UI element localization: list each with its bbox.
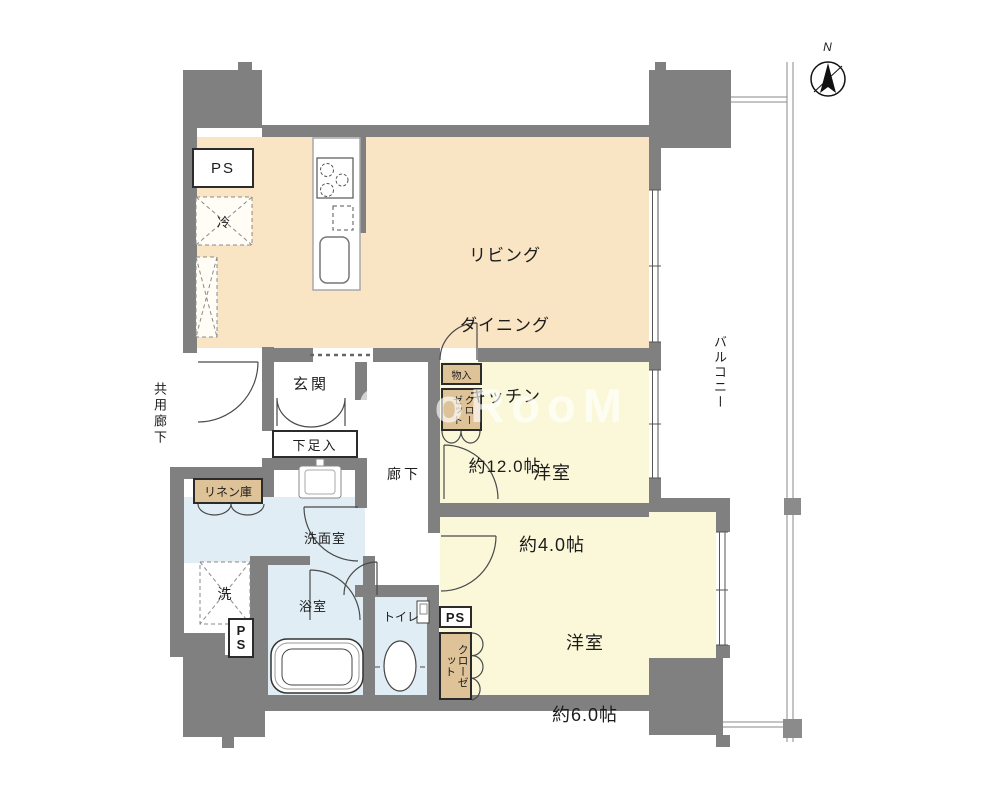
bathroom-label: 浴室 xyxy=(283,596,343,615)
pantry-box xyxy=(196,257,217,337)
bedroom4-label: 洋室 約4.0帖 xyxy=(472,412,632,606)
window-ldk xyxy=(649,190,661,342)
ps-bottom-label: PS xyxy=(446,610,465,625)
balcony-label: バルコニー xyxy=(710,332,729,412)
balcony-railing xyxy=(723,62,802,742)
washroom-label: 洗面室 xyxy=(287,528,363,547)
ps-left-box: P S xyxy=(228,618,254,658)
bedroom6-size: 約6.0帖 xyxy=(505,703,665,727)
bedroom4-size: 約4.0帖 xyxy=(472,533,632,557)
linen-label: リネン庫 xyxy=(204,483,252,500)
ldk-label-line3: キッチン xyxy=(415,385,595,408)
bedroom6-label: 洋室 約6.0帖 xyxy=(505,582,665,776)
front-door-arc xyxy=(198,362,258,422)
ps-bottom-box: PS xyxy=(439,606,472,628)
bedroom4-name: 洋室 xyxy=(472,461,632,485)
ps-left-p: P xyxy=(237,624,246,638)
washer-label: 洗 xyxy=(213,584,237,604)
north-arrow-icon xyxy=(811,62,845,96)
floorplan: PS 下足入 リネン庫 物入 クローゼット PS クローゼット P S 冷 洗 … xyxy=(0,0,999,801)
north-label: N xyxy=(818,40,838,54)
common-corridor-label: 共用廊下 xyxy=(150,374,169,454)
window-bedroom6 xyxy=(716,532,728,645)
ldk-label-line1: リビング xyxy=(415,244,595,267)
toilet-label: トイレ xyxy=(375,608,427,625)
washbasin xyxy=(299,459,341,498)
ps-top-box: PS xyxy=(192,148,254,188)
window-bedroom4 xyxy=(649,370,661,478)
closet-lower-label: クローゼット xyxy=(443,644,468,688)
entrance-label: 玄関 xyxy=(283,373,339,394)
closet-lower-box: クローゼット xyxy=(439,632,472,700)
bedroom6-name: 洋室 xyxy=(505,631,665,655)
shoe-cabinet-box: 下足入 xyxy=(272,430,358,458)
kitchen-counter xyxy=(313,138,360,290)
toilet-door-arc xyxy=(344,562,377,595)
shoe-cabinet-label: 下足入 xyxy=(292,435,337,454)
linen-bifold xyxy=(198,504,264,515)
ps-left-s: S xyxy=(237,638,246,652)
refrigerator-label: 冷 xyxy=(212,212,236,231)
ps-top-label: PS xyxy=(211,160,235,177)
linen-box: リネン庫 xyxy=(193,478,263,504)
bathtub xyxy=(271,639,363,693)
ldk-label-line2: ダイニング xyxy=(415,314,595,337)
entry-door-arcs xyxy=(277,398,345,427)
closet-lower-bifold xyxy=(472,633,483,700)
hallway-label: 廊下 xyxy=(378,464,430,484)
